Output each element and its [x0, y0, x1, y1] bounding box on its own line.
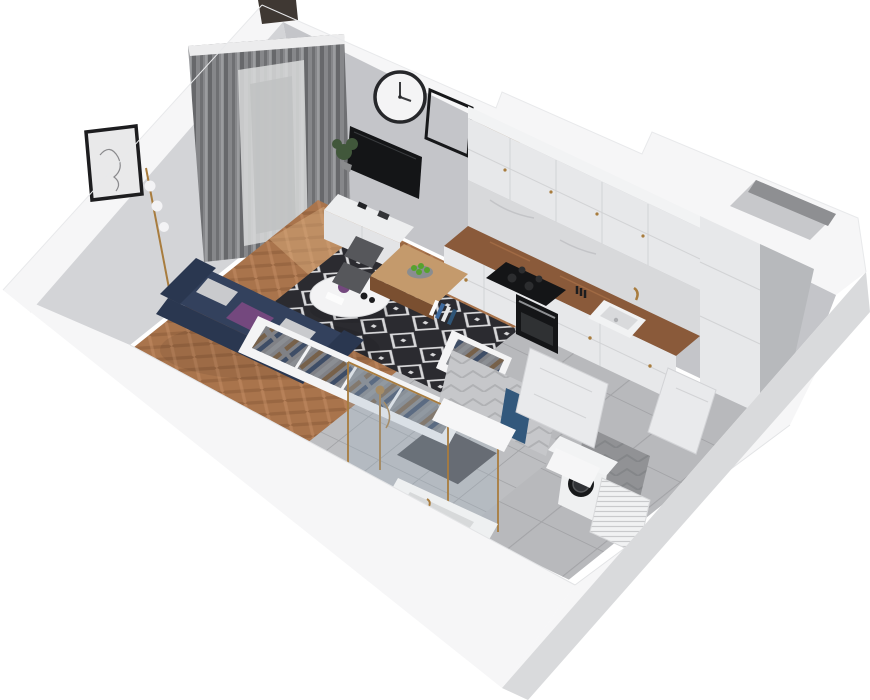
- wall-clock: [375, 72, 425, 122]
- cup: [361, 293, 368, 300]
- lamp-globe: [159, 222, 169, 232]
- tall-cabinet-column: [700, 216, 760, 414]
- cup: [369, 297, 375, 303]
- apple: [411, 265, 417, 271]
- apartment-3d-render: [0, 0, 870, 700]
- apple: [424, 267, 430, 273]
- apple: [418, 263, 424, 269]
- floorplan-render: [0, 0, 870, 700]
- apple: [416, 269, 422, 275]
- drain: [614, 318, 618, 322]
- lamp-globe: [152, 201, 163, 212]
- lamp-globe: [145, 181, 156, 192]
